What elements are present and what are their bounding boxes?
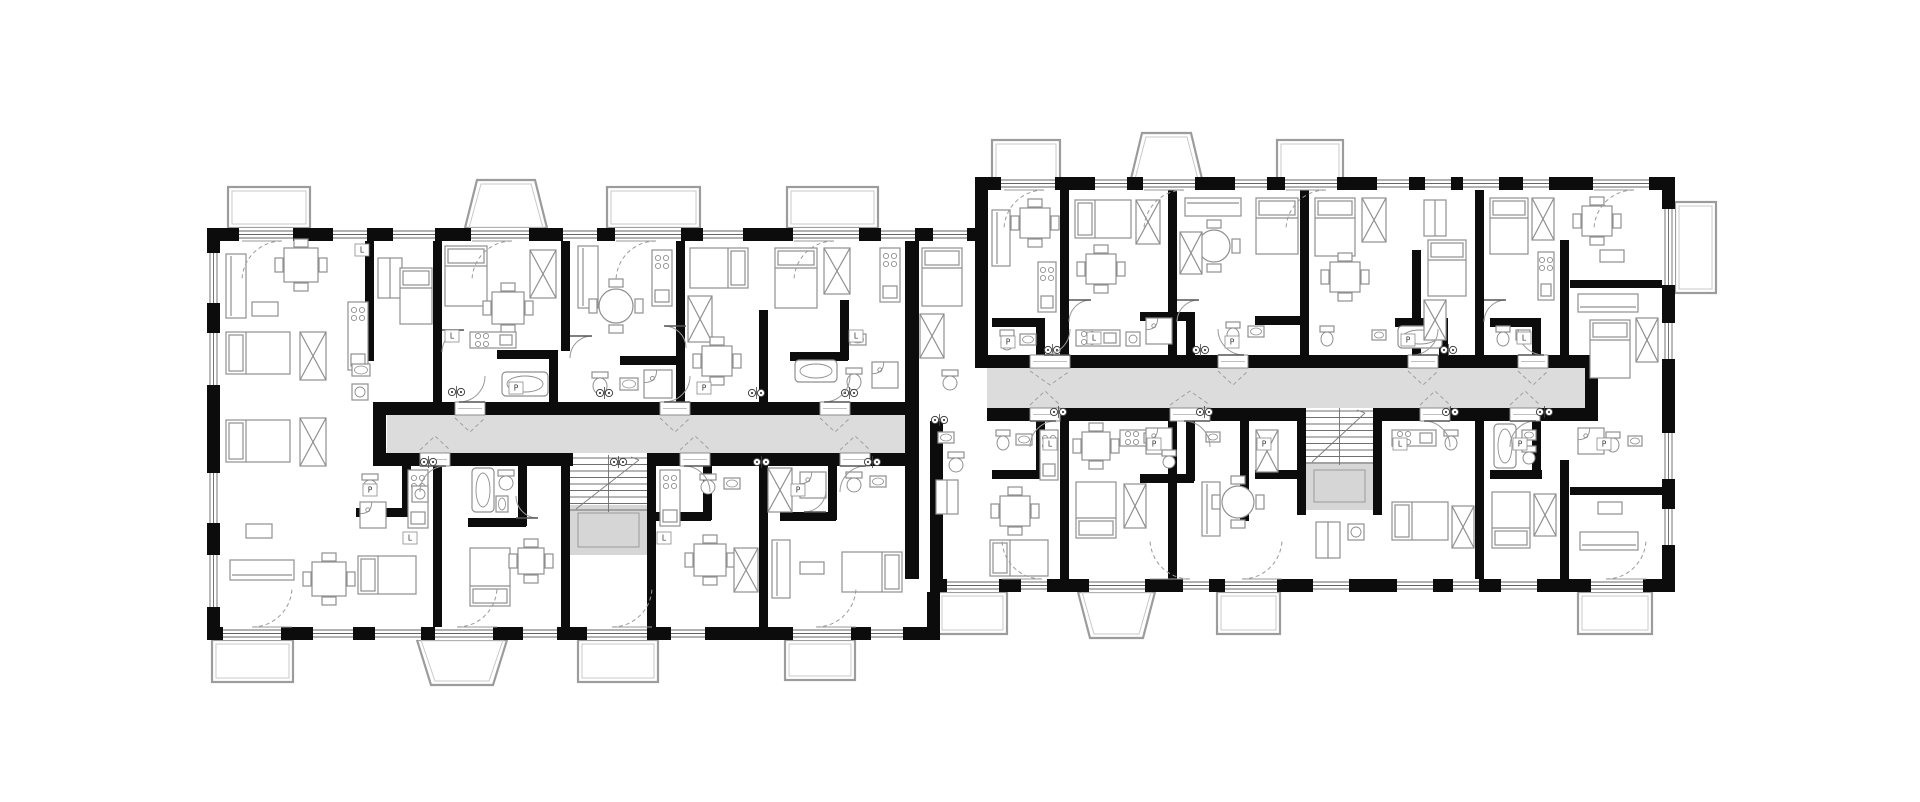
wall [1560, 240, 1569, 355]
chair-symbol [322, 597, 336, 605]
chair-symbol [319, 258, 327, 272]
chair-symbol [1051, 216, 1059, 230]
table-symbol [1000, 496, 1030, 526]
wall [1475, 421, 1484, 579]
stair-run-arrow [631, 457, 639, 460]
wall [828, 466, 837, 520]
washer-symbol [1348, 524, 1364, 540]
coffee-table-symbol [1600, 250, 1624, 262]
table-symbol [1086, 254, 1116, 284]
wall [1255, 316, 1307, 325]
wall [1475, 190, 1484, 355]
chair-symbol [733, 354, 741, 368]
wall [905, 466, 919, 579]
door-swing-arc [816, 587, 856, 627]
chair-symbol [1011, 216, 1019, 230]
door-arc [1069, 300, 1091, 322]
wall [1060, 421, 1069, 579]
chair-symbol [1613, 214, 1621, 228]
wall [497, 350, 557, 359]
wc-tank [498, 470, 514, 476]
plumbing-stack-dot [1062, 411, 1064, 413]
wc-tank [1606, 432, 1620, 438]
appliance-label: P [1602, 440, 1607, 449]
plumbing-stack-dot [613, 461, 615, 463]
chair-symbol [294, 283, 308, 291]
chair-symbol [1338, 293, 1352, 301]
wall [373, 402, 386, 466]
wall [549, 350, 558, 402]
bed-symbol [922, 248, 962, 306]
sofa-symbol [230, 560, 294, 580]
wall [690, 402, 820, 415]
wc-tank [592, 372, 608, 378]
chair-symbol [1028, 199, 1042, 207]
balcony [228, 187, 310, 228]
wall [710, 453, 840, 466]
shower-symbol [644, 370, 672, 398]
round-table-symbol [1198, 230, 1230, 262]
kitchen-counter-symbol [470, 332, 516, 348]
appliance-label: P [1262, 440, 1267, 449]
wall [518, 466, 527, 526]
table-symbol [312, 562, 346, 596]
plumbing-stack-dot [608, 392, 610, 394]
chair-symbol [1207, 220, 1221, 228]
wall [1186, 312, 1195, 362]
table-symbol [1330, 262, 1360, 292]
chair-symbol [710, 377, 724, 385]
plumbing-stack-dot [1053, 411, 1055, 413]
wc-tank [948, 452, 964, 458]
wc-tank [700, 474, 716, 480]
floor-plan-page: LPLPLPLLPPLPPLLPPLPP [0, 0, 1920, 802]
coffee-table-symbol [246, 524, 272, 538]
appliance-label: P [368, 486, 373, 495]
bed-symbol [226, 332, 290, 374]
sofa-symbol [772, 540, 790, 598]
wall [1570, 487, 1662, 495]
bed-symbol [842, 552, 902, 592]
balcony [785, 640, 855, 680]
bed-symbol [1392, 502, 1448, 540]
plumbing-stack-dot [934, 419, 936, 421]
chair-symbol [1573, 214, 1581, 228]
stair-run-line [1312, 413, 1365, 462]
table-symbol [1020, 208, 1050, 238]
chair-symbol [1256, 495, 1264, 509]
balcony [992, 140, 1060, 183]
bed-symbol [400, 268, 432, 324]
chair-symbol [1008, 487, 1022, 495]
wc-tank [1162, 450, 1176, 456]
wc-tank [996, 430, 1010, 436]
round-table-symbol [599, 289, 633, 323]
chair-symbol [275, 258, 283, 272]
chair-symbol [1077, 262, 1085, 276]
plumbing-stack-dot [756, 461, 758, 463]
plumbing-stack-dot [1445, 411, 1447, 413]
balcony-bay [465, 180, 547, 228]
appliance-label: P [1006, 338, 1011, 347]
table-symbol [702, 346, 732, 376]
chair-symbol [1231, 520, 1245, 528]
bed-symbol [226, 420, 290, 462]
bed-symbol [1315, 198, 1355, 256]
wall [850, 402, 912, 415]
plumbing-stack-dot [1047, 349, 1049, 351]
plumbing-stack-dot [765, 461, 767, 463]
coffee-table-symbol [800, 562, 824, 574]
bed-symbol [1490, 198, 1528, 254]
plumbing-stack-dot [1195, 349, 1197, 351]
wall [975, 190, 988, 368]
wall [433, 466, 442, 627]
wc-tank [1000, 330, 1014, 336]
plumbing-stack-dot [1539, 411, 1541, 413]
wall [485, 402, 660, 415]
chair-symbol [1338, 253, 1352, 261]
bed-symbol [1076, 482, 1116, 538]
chair-symbol [322, 553, 336, 561]
wc-bowl [1523, 452, 1535, 464]
plumbing-stack-dot [460, 391, 462, 393]
round-table-symbol [1222, 486, 1254, 518]
appliance-label: P [1230, 338, 1235, 347]
wall [1377, 408, 1420, 421]
chair-symbol [509, 554, 517, 568]
wall [1438, 355, 1518, 368]
table-symbol [1582, 206, 1612, 236]
washer-symbol [352, 384, 368, 400]
chair-symbol [524, 575, 538, 583]
door-swing-arc [612, 587, 652, 627]
wc-bowl [1497, 332, 1509, 346]
chair-symbol [1232, 239, 1240, 253]
wall [561, 455, 570, 627]
wall [759, 466, 768, 627]
balcony [787, 187, 878, 228]
sofa-symbol [992, 210, 1010, 266]
door-swing-arc [252, 587, 292, 627]
wall [1060, 190, 1069, 355]
wc-tank [1320, 326, 1334, 332]
chair-symbol [294, 239, 308, 247]
chair-symbol [609, 279, 623, 287]
plumbing-stack-dot [853, 392, 855, 394]
appliance-label: P [1152, 440, 1157, 449]
coffee-table-symbol [252, 302, 278, 316]
balcony [1675, 202, 1716, 293]
wc-bowl [949, 458, 963, 472]
plumbing-stack-dot [943, 419, 945, 421]
bed-symbol [1428, 240, 1466, 296]
bathtub-symbol [795, 360, 837, 382]
plumbing-stack-dot [1443, 349, 1445, 351]
chair-symbol [1031, 504, 1039, 518]
chair-symbol [1094, 245, 1108, 253]
wall [975, 355, 1030, 368]
chair-symbol [1089, 461, 1103, 469]
coffee-table-symbol [1598, 502, 1622, 514]
shower-symbol [1146, 318, 1172, 344]
balcony-bay [417, 640, 507, 685]
wall [561, 241, 570, 351]
wall [1140, 474, 1194, 483]
chair-symbol [1207, 264, 1221, 272]
chair-symbol [483, 301, 491, 315]
corridor [387, 415, 912, 453]
wall [1570, 280, 1662, 288]
stair-landing [1306, 462, 1373, 510]
chair-symbol [1008, 527, 1022, 535]
door-swing-arc [1242, 539, 1282, 579]
chair-symbol [710, 337, 724, 345]
wall [468, 518, 526, 527]
table-symbol [518, 548, 544, 574]
chair-symbol [303, 572, 311, 586]
wall [840, 300, 849, 360]
balcony [1578, 592, 1652, 634]
appliance-label: P [514, 384, 519, 393]
wall [1070, 355, 1218, 368]
chair-symbol [589, 299, 597, 313]
table-symbol [492, 292, 524, 324]
wall [1450, 408, 1510, 421]
chair-symbol [1590, 237, 1604, 245]
sofa-symbol [1185, 198, 1241, 216]
bed-symbol [690, 248, 748, 288]
wall [1560, 460, 1569, 579]
chair-symbol [1111, 439, 1119, 453]
bed-symbol [358, 556, 416, 594]
bed-symbol [1075, 200, 1131, 238]
wc-bowl [1445, 436, 1457, 450]
plumbing-stack-dot [1208, 411, 1210, 413]
balcony [212, 640, 293, 682]
plumbing-stack-dot [1204, 349, 1206, 351]
chair-symbol [1028, 239, 1042, 247]
wc-bowl [1163, 456, 1175, 468]
balcony [938, 592, 1007, 634]
wc-tank [846, 368, 862, 374]
wall [1248, 355, 1408, 368]
wall [780, 512, 836, 521]
shower-symbol [872, 362, 898, 388]
bed-symbol [445, 246, 487, 306]
floor-plan: LPLPLPLLPPLPPLLPPLPP [0, 0, 1920, 802]
chair-symbol [1073, 439, 1081, 453]
wall [676, 241, 685, 402]
sofa-symbol [1580, 532, 1638, 550]
wall [1186, 421, 1195, 481]
plumbing-stack-dot [1548, 411, 1550, 413]
appliance-label: P [1406, 336, 1411, 345]
wall [647, 455, 656, 627]
wall [987, 408, 1030, 421]
wc-bowl [847, 478, 861, 492]
balcony-bay [1078, 592, 1155, 638]
wc-tank [942, 370, 958, 376]
bed-symbol [775, 248, 817, 308]
stair-run-arrow [1357, 410, 1365, 413]
plumbing-stack-dot [423, 461, 425, 463]
balcony [578, 640, 658, 682]
balcony [607, 187, 700, 228]
wall [450, 453, 573, 466]
plumbing-stack-dot [876, 461, 878, 463]
chair-symbol [1361, 270, 1369, 284]
appliance-label: P [702, 384, 707, 393]
chair-symbol [1117, 262, 1125, 276]
stair-run-line [576, 460, 639, 509]
chair-symbol [635, 299, 643, 313]
chair-symbol [609, 325, 623, 333]
wc-tank [1496, 326, 1510, 332]
plumbing-stack-dot [867, 461, 869, 463]
chair-symbol [991, 504, 999, 518]
table-symbol [1082, 432, 1110, 460]
wall [1210, 408, 1297, 421]
chair-symbol [525, 301, 533, 315]
wall [759, 310, 768, 402]
bed-symbol [1590, 320, 1630, 378]
wall [905, 402, 919, 466]
table-symbol [284, 248, 318, 282]
door-arc [570, 336, 592, 358]
bed-symbol [1492, 492, 1530, 548]
corridor [987, 368, 1585, 408]
plumbing-stack-dot [1199, 411, 1201, 413]
plumbing-stack-dot [622, 461, 624, 463]
plumbing-stack-dot [760, 392, 762, 394]
door-swing-arc [616, 241, 656, 281]
wall [1373, 408, 1382, 515]
chair-symbol [703, 577, 717, 585]
chair-symbol [1231, 476, 1245, 484]
plumbing-stack-dot [1454, 411, 1456, 413]
plumbing-stack-dot [451, 391, 453, 393]
chair-symbol [347, 572, 355, 586]
wall [620, 356, 676, 365]
wall [1300, 190, 1309, 355]
plumbing-stack-dot [599, 392, 601, 394]
plumbing-stack-dot [432, 461, 434, 463]
shower-symbol [360, 502, 386, 528]
bed-symbol [470, 548, 510, 606]
wall [1297, 408, 1306, 515]
plumbing-stack-dot [1452, 349, 1454, 351]
sofa-symbol [1578, 294, 1638, 312]
wc-bowl [499, 476, 513, 490]
bed-symbol [1256, 198, 1298, 254]
wall [1060, 408, 1170, 421]
chair-symbol [1094, 285, 1108, 293]
chair-symbol [703, 535, 717, 543]
wc-tank [1226, 322, 1240, 328]
wc-bowl [997, 436, 1009, 450]
sofa-symbol [226, 254, 246, 318]
balcony [1277, 140, 1343, 183]
chair-symbol [693, 354, 701, 368]
wc-tank [362, 474, 378, 480]
appliance-label: P [796, 486, 801, 495]
chair-symbol [1321, 270, 1329, 284]
wall [433, 241, 442, 402]
chair-symbol [685, 553, 693, 567]
wc-bowl [943, 376, 957, 390]
wc-bowl [1321, 332, 1333, 346]
chair-symbol [524, 539, 538, 547]
balcony [1217, 592, 1280, 634]
bed-symbol [990, 540, 1048, 576]
chair-symbol [1212, 495, 1220, 509]
chair-symbol [501, 283, 515, 291]
plumbing-stack-dot [751, 392, 753, 394]
wall [905, 241, 919, 402]
chair-symbol [1590, 197, 1604, 205]
bathtub-symbol [472, 468, 494, 512]
washer-symbol [1126, 332, 1140, 346]
chair-symbol [1089, 423, 1103, 431]
table-symbol [694, 544, 726, 576]
appliance-label: P [1518, 440, 1523, 449]
wall [927, 592, 940, 640]
chair-symbol [545, 554, 553, 568]
